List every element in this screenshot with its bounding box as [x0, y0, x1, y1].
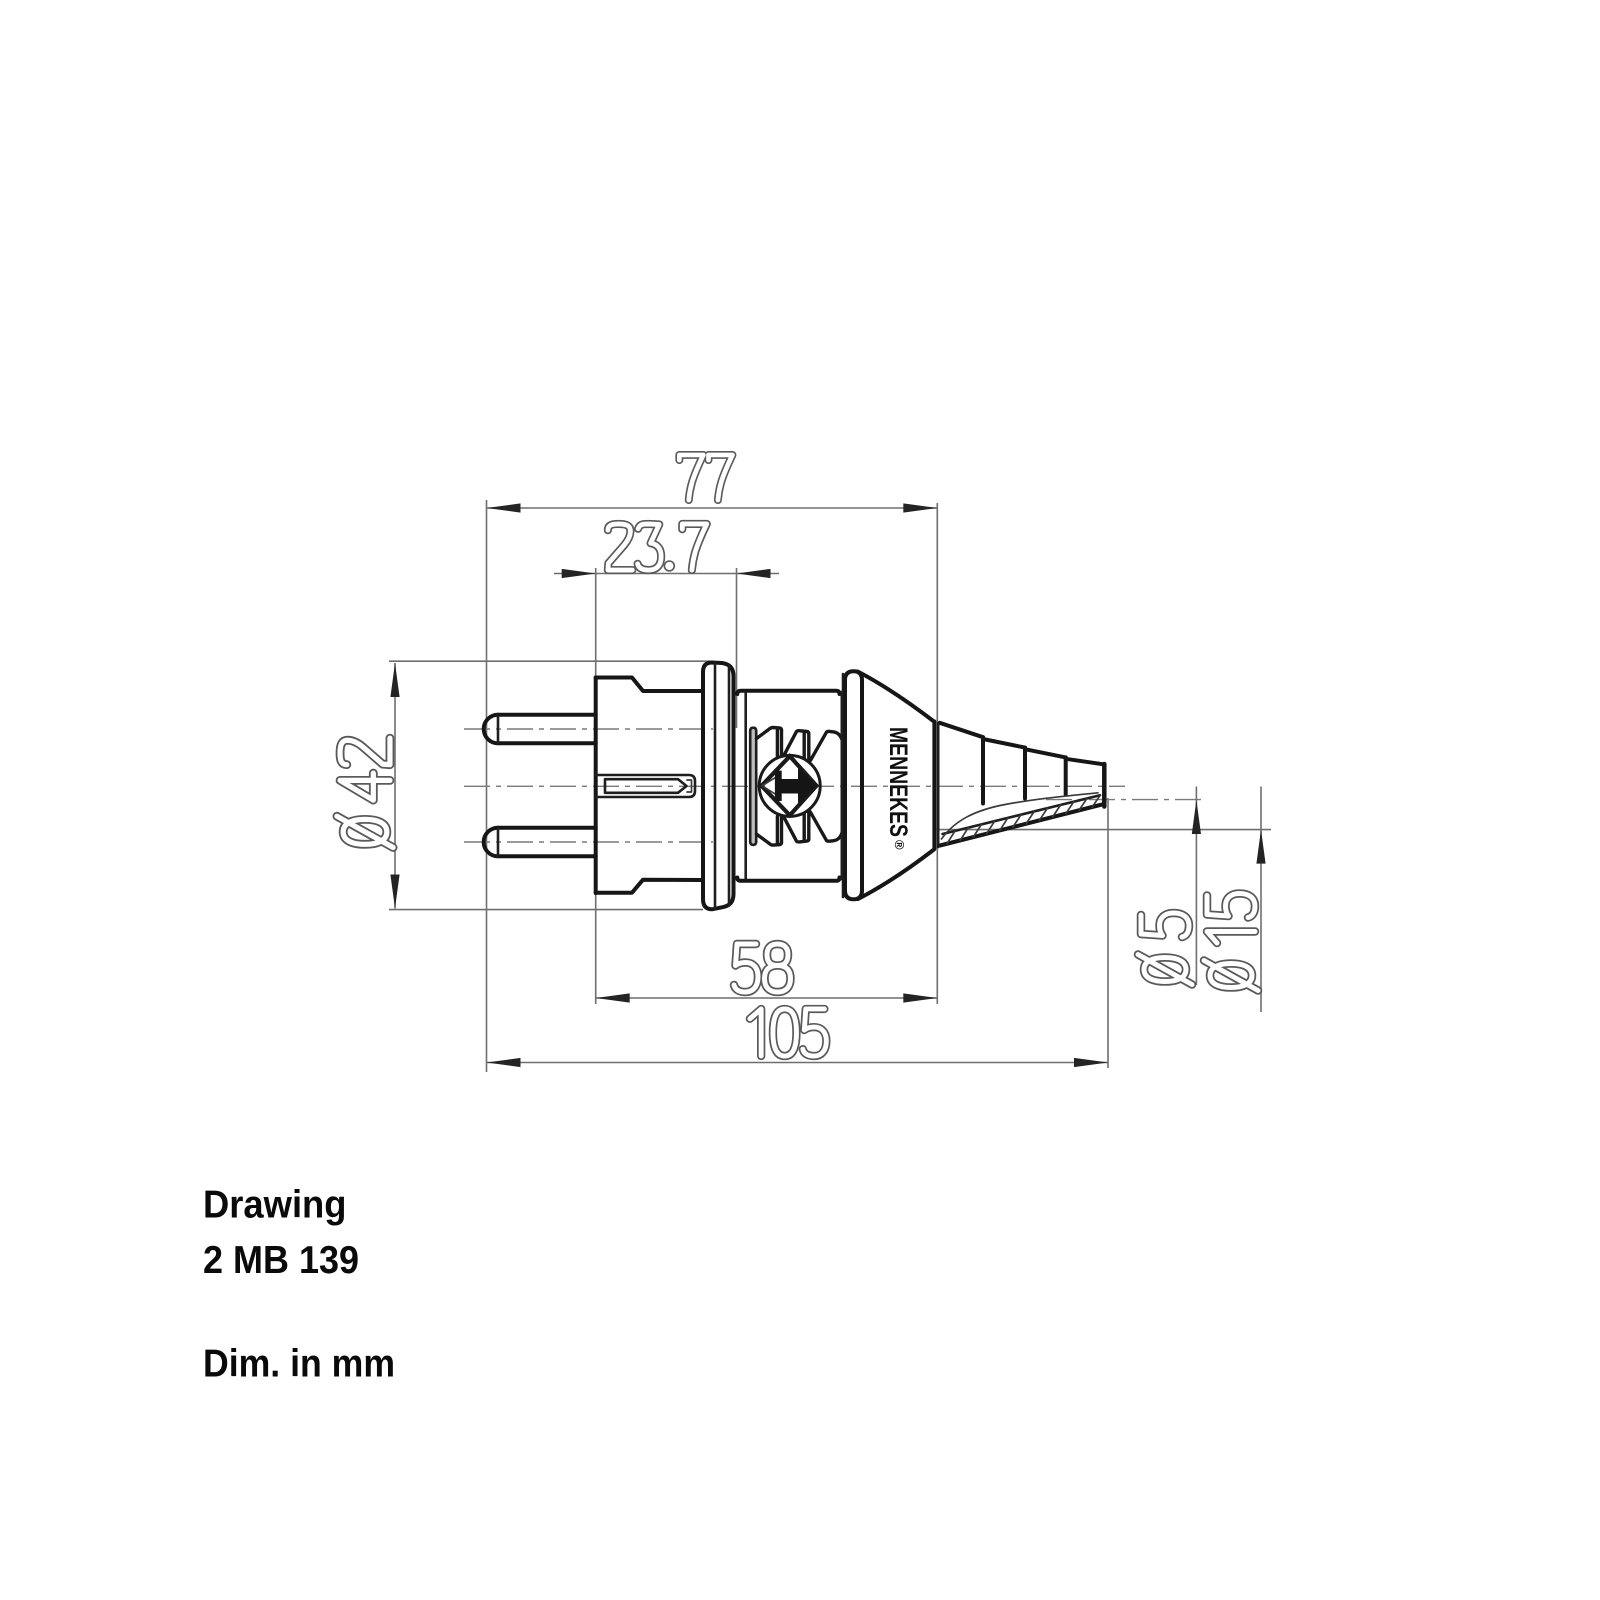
svg-text:2 MB 139: 2 MB 139: [203, 1239, 359, 1282]
svg-text:Drawing: Drawing: [203, 1184, 347, 1227]
svg-text:Dim. in mm: Dim. in mm: [203, 1342, 395, 1385]
svg-text:MENNEKES: MENNEKES: [884, 727, 912, 837]
svg-text:®: ®: [892, 840, 907, 850]
